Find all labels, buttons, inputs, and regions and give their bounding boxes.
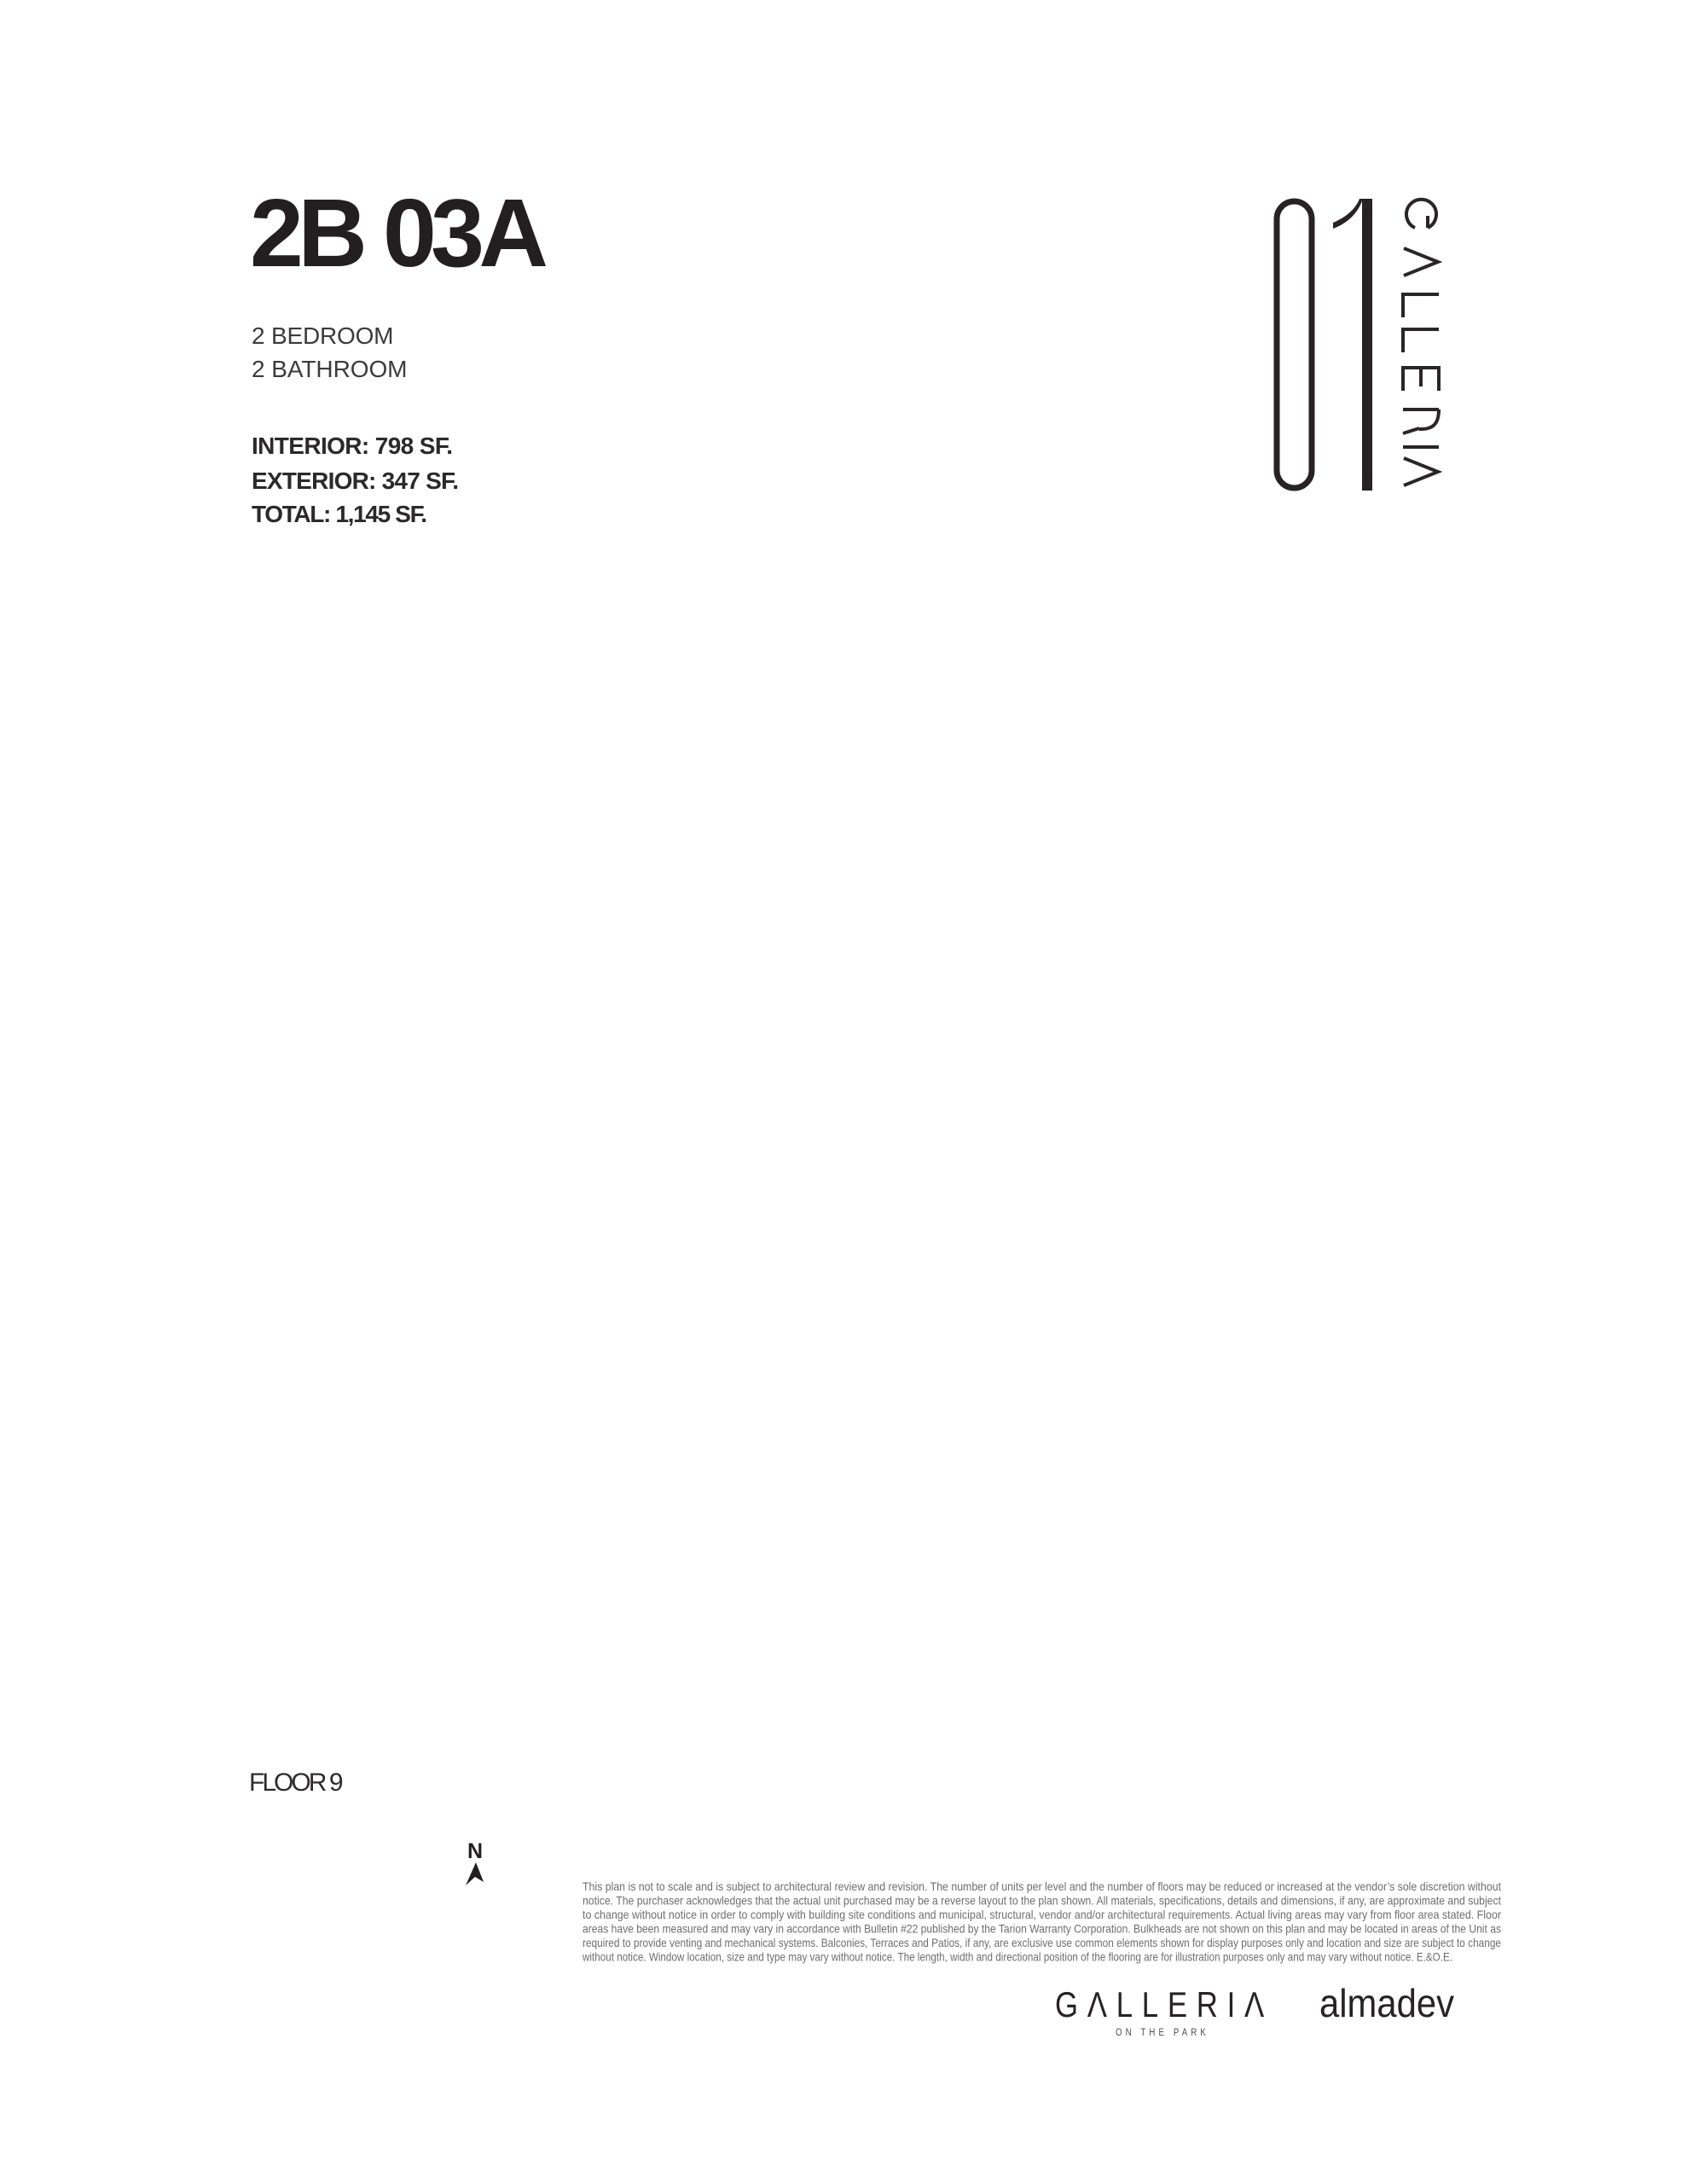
- svg-text:to change without notice in or: to change without notice in order to com…: [583, 1908, 1501, 1921]
- svg-text:2B 03A: 2B 03A: [250, 179, 550, 287]
- svg-text:almadev: almadev: [1319, 1981, 1454, 2025]
- svg-text:2 BATHROOM: 2 BATHROOM: [252, 356, 408, 382]
- svg-text:N: N: [467, 1839, 483, 1863]
- svg-text:notice. The purchaser acknowle: notice. The purchaser acknowledges that …: [583, 1895, 1501, 1908]
- svg-text:FLOOR 9: FLOOR 9: [249, 1769, 345, 1797]
- svg-text:2 BEDROOM: 2 BEDROOM: [252, 322, 394, 349]
- svg-text:without notice. Window locatio: without notice. Window location, size an…: [582, 1951, 1452, 1964]
- svg-text:EXTERIOR: 347 SF.: EXTERIOR: 347 SF.: [252, 468, 459, 494]
- svg-text:GΛLLERIΛ: GΛLLERIΛ: [1055, 1984, 1273, 2024]
- svg-text:ON THE PARK: ON THE PARK: [1116, 2028, 1209, 2038]
- svg-text:This plan is not to scale and: This plan is not to scale and is subject…: [583, 1880, 1501, 1893]
- svg-text:INTERIOR: 798 SF.: INTERIOR: 798 SF.: [252, 433, 453, 459]
- svg-text:areas have been measured and m: areas have been measured and may vary in…: [583, 1923, 1501, 1936]
- svg-text:required to provide venting an: required to provide venting and mechanic…: [583, 1937, 1501, 1949]
- svg-text:TOTAL: 1,145 SF.: TOTAL: 1,145 SF.: [252, 501, 427, 527]
